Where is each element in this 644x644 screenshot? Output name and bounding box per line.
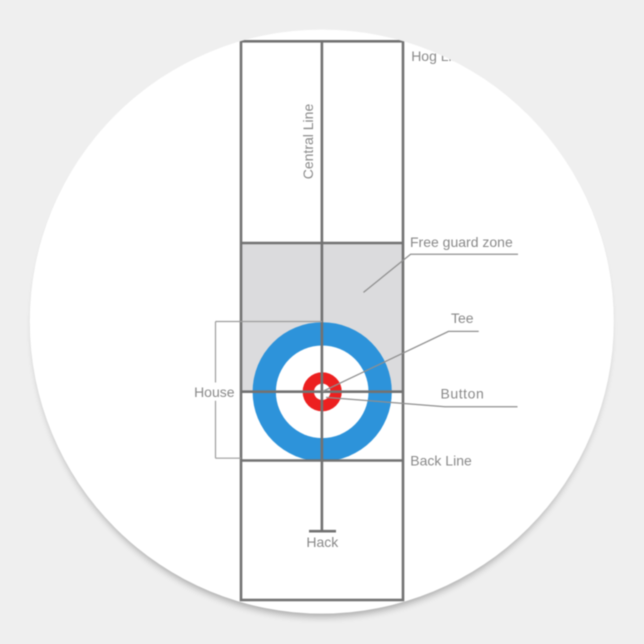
svg-text:Tee: Tee <box>451 310 474 326</box>
svg-text:Button: Button <box>441 386 485 402</box>
svg-text:Hack: Hack <box>306 534 339 550</box>
svg-text:House: House <box>194 384 235 400</box>
svg-text:Free guard zone: Free guard zone <box>410 234 513 250</box>
svg-text:Back Line: Back Line <box>410 453 472 469</box>
svg-text:Central Line: Central Line <box>300 104 316 180</box>
